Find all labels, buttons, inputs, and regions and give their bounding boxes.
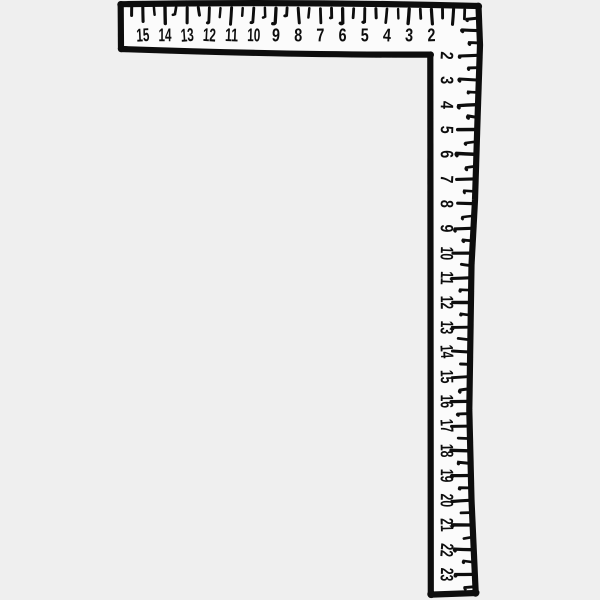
svg-text:7: 7 bbox=[316, 24, 324, 45]
svg-text:3: 3 bbox=[437, 76, 457, 85]
svg-text:11: 11 bbox=[225, 24, 239, 46]
svg-text:22: 22 bbox=[436, 543, 457, 558]
svg-text:5: 5 bbox=[361, 24, 369, 45]
svg-text:10: 10 bbox=[437, 246, 457, 260]
svg-text:20: 20 bbox=[437, 493, 457, 507]
svg-text:15: 15 bbox=[437, 370, 457, 384]
svg-text:9: 9 bbox=[437, 224, 457, 233]
svg-text:4: 4 bbox=[437, 101, 457, 110]
svg-text:2: 2 bbox=[427, 24, 436, 45]
svg-text:18: 18 bbox=[437, 444, 457, 458]
svg-text:12: 12 bbox=[202, 24, 216, 46]
svg-text:11: 11 bbox=[437, 271, 457, 285]
svg-text:8: 8 bbox=[437, 199, 457, 208]
svg-text:21: 21 bbox=[437, 518, 457, 532]
svg-text:15: 15 bbox=[136, 24, 150, 46]
svg-text:12: 12 bbox=[437, 296, 457, 310]
svg-text:13: 13 bbox=[437, 320, 457, 334]
svg-text:6: 6 bbox=[437, 150, 457, 158]
svg-text:7: 7 bbox=[437, 175, 457, 184]
svg-text:13: 13 bbox=[180, 24, 194, 46]
svg-text:17: 17 bbox=[436, 418, 457, 433]
svg-text:19: 19 bbox=[437, 469, 457, 483]
svg-text:23: 23 bbox=[437, 568, 457, 582]
svg-text:6: 6 bbox=[338, 24, 346, 45]
svg-text:14: 14 bbox=[436, 344, 457, 359]
svg-text:16: 16 bbox=[437, 395, 457, 409]
svg-text:3: 3 bbox=[405, 24, 414, 45]
svg-text:14: 14 bbox=[158, 24, 171, 45]
svg-text:5: 5 bbox=[437, 125, 457, 134]
svg-text:2: 2 bbox=[437, 51, 457, 60]
svg-text:8: 8 bbox=[294, 24, 302, 45]
svg-text:10: 10 bbox=[247, 24, 261, 45]
svg-text:9: 9 bbox=[271, 24, 280, 45]
